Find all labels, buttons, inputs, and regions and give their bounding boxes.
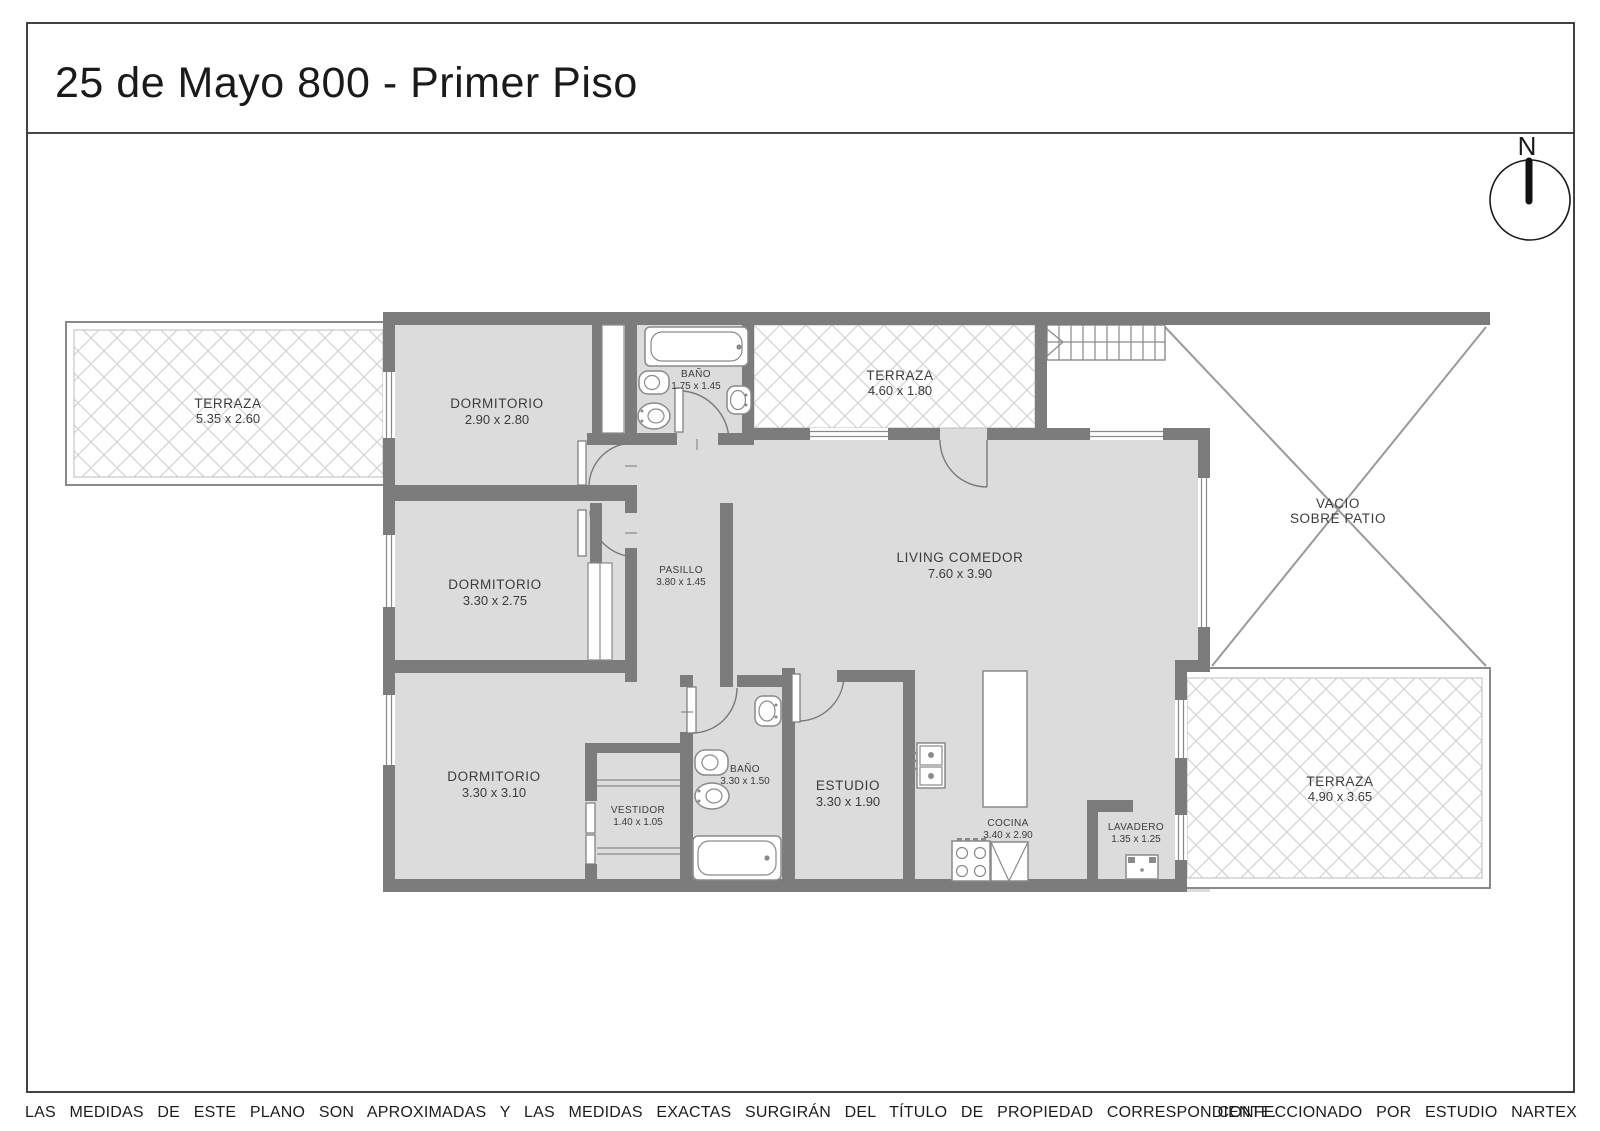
label-lavadero-name: LAVADERO: [1108, 822, 1164, 833]
label-vacio-name: VACIO: [1316, 496, 1360, 511]
floor-plan-sheet: 25 de Mayo 800 - Primer Piso N: [0, 0, 1600, 1131]
label-lavadero-dims: 1.35 x 1.25: [1111, 834, 1161, 845]
label-pasillo-dims: 3.80 x 1.45: [656, 577, 706, 588]
label-pasillo-name: PASILLO: [659, 565, 703, 576]
stove: [952, 838, 990, 881]
page-title: 25 de Mayo 800 - Primer Piso: [55, 59, 638, 107]
label-vestidor-dims: 1.40 x 1.05: [613, 817, 663, 828]
label-terraza-superior-dims: 4.60 x 1.80: [868, 383, 932, 398]
label-estudio-name: ESTUDIO: [816, 778, 880, 793]
label-estudio-dims: 3.30 x 1.90: [816, 794, 880, 809]
label-terraza-superior-name: TERRAZA: [866, 368, 933, 383]
label-terraza-inferior-name: TERRAZA: [1306, 774, 1373, 789]
label-cocina-name: COCINA: [987, 818, 1028, 829]
compass-north-label: N: [1518, 131, 1537, 161]
label-dormitorio-1-dims: 2.90 x 2.80: [465, 412, 529, 427]
label-dormitorio-2-dims: 3.30 x 2.75: [463, 593, 527, 608]
toilet-1: [639, 371, 669, 394]
label-terraza-inferior-dims: 4.90 x 3.65: [1308, 789, 1372, 804]
sink-1: [727, 386, 751, 414]
label-living-comedor-dims: 7.60 x 3.90: [928, 566, 992, 581]
kitchen-sink: [914, 743, 945, 788]
toilet-2: [695, 750, 728, 775]
label-banio-1-dims: 1.75 x 1.45: [671, 381, 721, 392]
footer-disclaimer: LAS MEDIDAS DE ESTE PLANO SON APROXIMADA…: [25, 1102, 1276, 1121]
label-vestidor-name: VESTIDOR: [611, 805, 665, 816]
label-dormitorio-1-name: DORMITORIO: [450, 396, 544, 411]
label-terraza-izquierda-dims: 5.35 x 2.60: [196, 411, 260, 426]
label-banio-2-name: BAÑO: [730, 762, 760, 775]
kitchen-island: [983, 671, 1027, 807]
label-terraza-izquierda-name: TERRAZA: [194, 396, 261, 411]
refrigerator: [991, 842, 1028, 881]
staircase: [1047, 325, 1165, 360]
bathtub-1: [645, 327, 748, 366]
sink-2: [755, 696, 781, 726]
label-banio-2-dims: 3.30 x 1.50: [720, 776, 770, 787]
label-cocina-dims: 3.40 x 2.90: [983, 830, 1033, 841]
washing-machine: [1126, 855, 1158, 879]
label-dormitorio-3-dims: 3.30 x 3.10: [462, 785, 526, 800]
label-dormitorio-3-name: DORMITORIO: [447, 769, 541, 784]
label-dormitorio-2-name: DORMITORIO: [448, 577, 542, 592]
vestidor-pocket-door: [586, 803, 595, 864]
closet-dormitorio-2: [588, 563, 612, 660]
footer-credit: CONFECCIONADO POR ESTUDIO NARTEX: [1218, 1104, 1577, 1121]
label-living-comedor-name: LIVING COMEDOR: [897, 550, 1024, 565]
bathtub-2: [693, 836, 781, 880]
bidet-1: [638, 403, 670, 429]
label-banio-1-name: BAÑO: [681, 367, 711, 380]
label-vacio-dims: SOBRE PATIO: [1290, 511, 1386, 526]
duct-shaft: [602, 325, 624, 433]
